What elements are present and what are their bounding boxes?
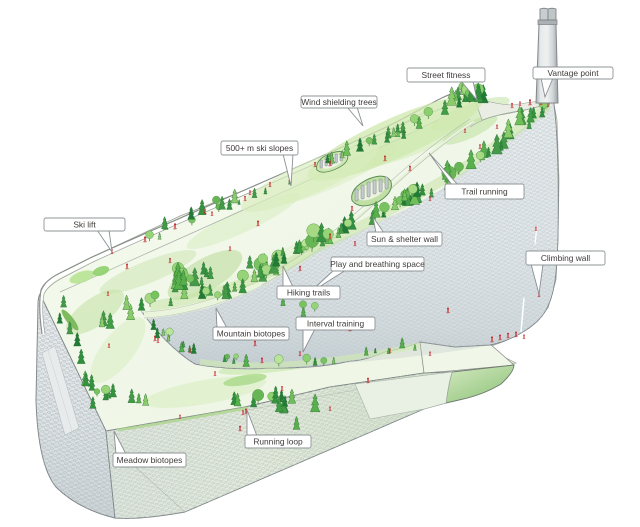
svg-text:Wind shielding trees: Wind shielding trees bbox=[301, 97, 376, 107]
svg-text:500+ m ski slopes: 500+ m ski slopes bbox=[226, 143, 293, 153]
svg-text:Interval training: Interval training bbox=[307, 319, 365, 329]
svg-text:Climbing wall: Climbing wall bbox=[541, 253, 590, 263]
svg-text:Trail running: Trail running bbox=[461, 187, 508, 197]
svg-text:Meadow biotopes: Meadow biotopes bbox=[117, 455, 183, 465]
svg-text:Play and breathing space: Play and breathing space bbox=[330, 259, 425, 269]
svg-text:Mountain biotopes: Mountain biotopes bbox=[217, 329, 285, 339]
svg-text:Vantage point: Vantage point bbox=[547, 68, 599, 78]
svg-text:Street fitness: Street fitness bbox=[422, 70, 471, 80]
svg-text:Sun & shelter wall: Sun & shelter wall bbox=[371, 234, 438, 244]
svg-text:Ski lift: Ski lift bbox=[73, 220, 96, 230]
svg-text:Hiking trails: Hiking trails bbox=[287, 288, 330, 298]
svg-text:Running loop: Running loop bbox=[253, 437, 303, 447]
